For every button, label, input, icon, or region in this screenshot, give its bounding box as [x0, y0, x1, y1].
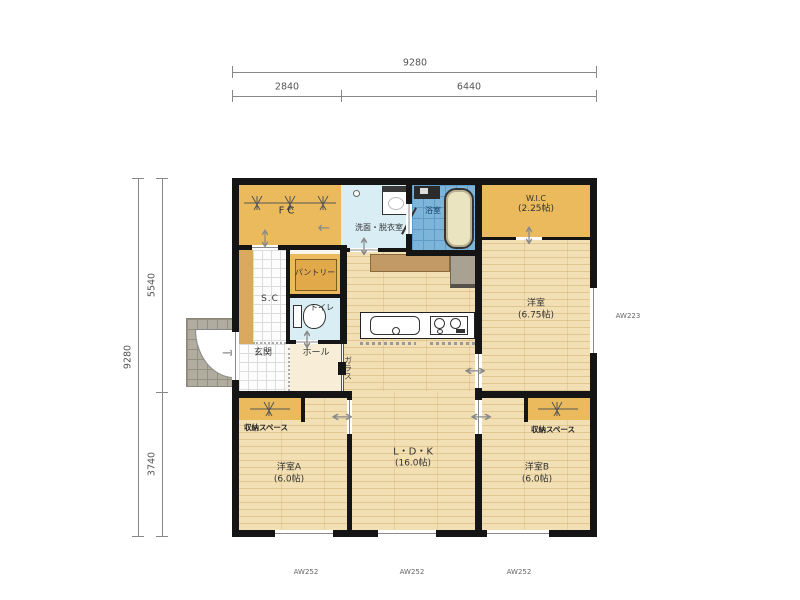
- door-arrow-bedroom-b: ↔: [470, 410, 493, 425]
- dim-top-seg2: 6440: [457, 82, 481, 93]
- label-bedroom-main: 洋室(6.75帖): [518, 298, 554, 321]
- closet-rod-icon-storage-a: [250, 400, 290, 418]
- stove-grill: [456, 329, 465, 333]
- label-bedroom-b: 洋室B(6.0帖): [522, 462, 552, 485]
- wall-mid-left: [232, 391, 352, 398]
- window-label-right: AW223: [616, 312, 641, 320]
- label-washroom: 洗面・脱衣室: [355, 223, 403, 233]
- stove-burner-2: [450, 318, 461, 329]
- label-entrance: 玄関: [254, 348, 272, 360]
- window-label-bottom-1: AW252: [294, 568, 319, 576]
- door-arrow-wic: ↕: [523, 225, 536, 249]
- floor-plan-canvas: 9280 2840 6440 9280 5540 3740 AW252 AW25…: [0, 0, 800, 600]
- bathtub: [444, 188, 474, 249]
- label-bath: 浴室: [425, 206, 441, 216]
- toilet-tank: [293, 305, 302, 328]
- label-wic: W.I.C(2.25帖): [518, 194, 554, 216]
- wall-pantry-right: [340, 250, 347, 344]
- shower-control: [420, 188, 428, 194]
- label-hall: ホール: [302, 348, 329, 360]
- entrance-door-opening: [232, 332, 239, 380]
- wall-storage-b-end: [524, 398, 528, 422]
- floor-drain: [353, 190, 360, 197]
- window-ldk: [378, 530, 436, 537]
- dim-top-seg1: 2840: [275, 82, 299, 93]
- window-label-bottom-2: AW252: [400, 568, 425, 576]
- washroom-leader-arrow: ←: [318, 221, 331, 236]
- washer-drum: [388, 197, 404, 210]
- dim-left-overall: 9280: [123, 345, 134, 369]
- window-bedroom-a: [275, 530, 333, 537]
- label-storage-b: 収納スペース: [531, 425, 575, 435]
- shoe-shelf: [239, 250, 254, 346]
- label-pantry: パントリー: [295, 268, 335, 278]
- wall-mid-right: [475, 391, 597, 398]
- door-arrow-bedroom-a: ↔: [331, 410, 354, 425]
- window-bedroom-b: [487, 530, 549, 537]
- wall-bath-bottom: [406, 250, 482, 256]
- label-storage-a: 収納スペース: [244, 423, 288, 433]
- refrigerator: [450, 254, 478, 288]
- door-arrow-bedroom-main: ↔: [464, 364, 487, 379]
- window-label-bottom-3: AW252: [507, 568, 532, 576]
- kitchen-mat-left: [360, 342, 416, 345]
- stove-burner-3: [437, 329, 443, 334]
- door-arrow-fc: ↕: [259, 228, 272, 252]
- window-bedroom-main: [590, 288, 597, 353]
- label-fc: FC: [279, 205, 298, 218]
- dim-top-overall: 9280: [403, 58, 427, 69]
- door-bath-opening: [406, 204, 412, 234]
- kitchen-mat-right: [430, 342, 475, 345]
- closet-rod-icon-storage-b: [538, 400, 578, 418]
- wall-pantry-toilet: [290, 294, 340, 298]
- dim-left-seg2: 3740: [147, 452, 158, 476]
- wall-storage-a-end: [301, 398, 305, 422]
- floor-plan: ↕ ↕ ↕ ↕ ↔ ↔ ↔ ← FC 洗面・脱衣室 浴室 W.I.C(2.25帖…: [232, 178, 597, 537]
- stove-burner-1: [434, 318, 445, 329]
- door-arrow-washroom: ↕: [358, 236, 371, 260]
- label-glass: ガラス: [343, 356, 354, 380]
- label-ldk: L・D・K(16.0帖): [393, 446, 433, 471]
- kitchen-cupboard: [370, 254, 450, 272]
- sink-drain: [392, 327, 400, 335]
- sc-dashed-line: [253, 342, 286, 344]
- hall-entrance-step: [288, 348, 290, 391]
- label-toilet: トイレ: [310, 303, 334, 313]
- dim-left-seg1: 5540: [147, 273, 158, 297]
- label-bedroom-a: 洋室A(6.0帖): [274, 462, 304, 485]
- label-sc: S.C: [261, 294, 279, 306]
